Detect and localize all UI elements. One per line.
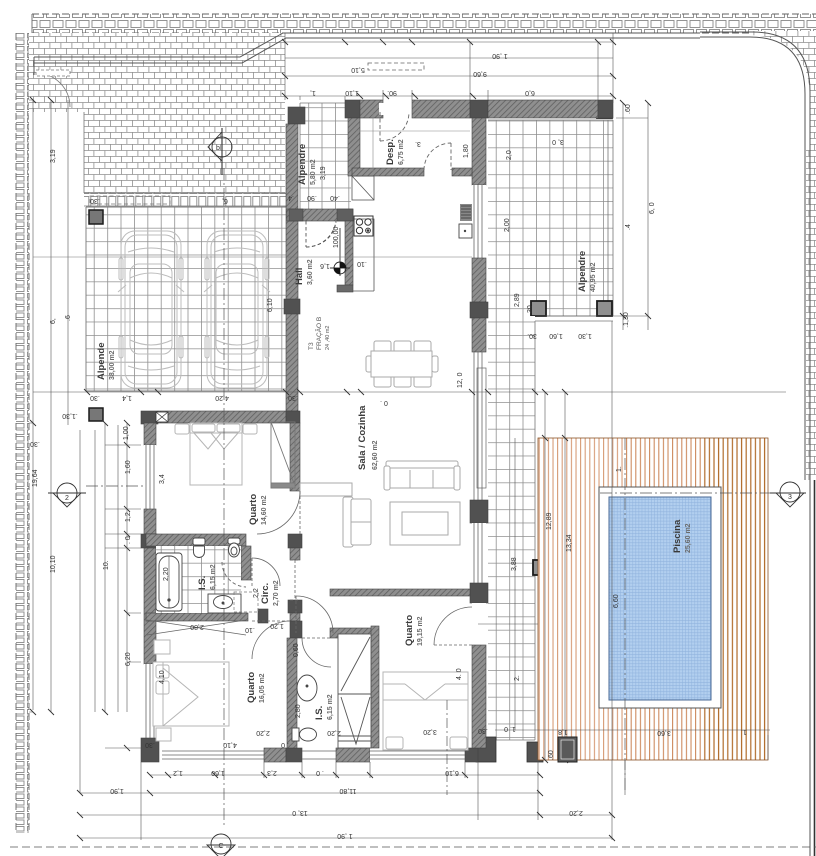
svg-text:5,80 m2: 5,80 m2 [310,159,317,185]
svg-text:30: 30 [527,305,534,313]
svg-text:24 ,40 m2: 24 ,40 m2 [325,326,331,350]
svg-text:62,60 m2: 62,60 m2 [372,440,379,470]
svg-text:3,19: 3,19 [320,166,327,180]
svg-text:2,20: 2,20 [163,567,170,581]
svg-text:2,89: 2,89 [514,293,521,307]
svg-text:.30: .30 [478,727,488,734]
svg-text:3.: 3. [415,140,421,147]
svg-text:Quarto: Quarto [248,494,259,525]
svg-text:9,60: 9,60 [473,70,487,77]
svg-text:.60: .60 [548,750,555,760]
svg-text:I.S.: I.S. [197,576,208,590]
svg-text:Alpendre: Alpendre [577,251,588,292]
svg-text:6,15 m2: 6,15 m2 [210,564,217,590]
svg-text:1,6: 1,6 [320,262,330,269]
svg-text:16,05 m2: 16,05 m2 [259,673,266,703]
svg-text:11,80: 11,80 [339,787,356,794]
svg-text:6,75 m2: 6,75 m2 [398,139,405,165]
svg-text:40,95 m2: 40,95 m2 [590,262,597,292]
svg-text:T3: T3 [308,342,315,350]
svg-text:2,2: 2,2 [253,588,260,598]
svg-text:100,00: 100,00 [333,226,340,248]
svg-text:.6: .6 [65,315,72,321]
svg-text:6,0: 6,0 [525,89,535,96]
svg-text:.30: .30 [30,440,40,447]
svg-text:6,15 m2: 6,15 m2 [327,694,334,720]
svg-text:.10: .10 [357,260,367,267]
svg-text:I.S.: I.S. [314,706,325,720]
svg-text:90.: 90. [387,89,397,96]
svg-text:1,2: 1,2 [125,512,132,522]
svg-text:C: C [218,843,223,850]
svg-text:4,20: 4,20 [215,394,229,401]
svg-text:Quarto: Quarto [404,615,415,646]
svg-text:1 ,90: 1 ,90 [337,832,353,839]
svg-text:b: b [216,145,220,152]
svg-text:30.: 30. [527,332,537,339]
svg-text:0 .: 0 . [380,399,388,406]
svg-text:6,: 6, [50,318,57,324]
svg-text:1,20: 1,20 [270,622,284,629]
svg-text:2,20: 2,20 [569,809,583,816]
svg-text:1,2: 1,2 [173,769,183,776]
svg-text:4. 0: 4. 0 [456,668,463,680]
svg-text:Piscina: Piscina [672,519,683,553]
svg-text:2,0: 2,0 [506,150,513,160]
svg-text:2,00: 2,00 [504,218,511,232]
svg-text:2,80: 2,80 [190,623,204,630]
svg-text:2,20: 2,20 [327,729,341,736]
svg-text:.30: .30 [145,741,155,748]
svg-text:1 ,90: 1 ,90 [492,52,508,59]
svg-text:. 0: . 0 [281,741,289,748]
svg-text:19,64: 19,64 [32,469,39,487]
svg-text:1,: 1, [310,89,316,96]
svg-text:1,60: 1,60 [211,769,225,776]
svg-text:.10: .10 [245,626,255,633]
svg-text:2,20: 2,20 [256,729,270,736]
svg-text:1,10: 1,10 [345,89,359,96]
svg-text:Sala / Cozinha: Sala / Cozinha [357,405,368,470]
svg-text:.30: .30 [90,197,100,204]
svg-text:Alpendre: Alpendre [297,144,308,185]
svg-text:13, 0: 13, 0 [292,809,308,816]
svg-text:3, 0: 3, 0 [552,138,564,145]
svg-text:Desp.: Desp. [385,139,396,165]
svg-text:10,10: 10,10 [50,555,57,573]
svg-text:3,60: 3,60 [657,729,671,736]
svg-text:13,34: 13,34 [566,534,573,552]
svg-text:12,89: 12,89 [546,512,553,530]
svg-text:6,60: 6,60 [613,594,620,608]
svg-text:4,10: 4,10 [159,670,166,684]
svg-text:1.: 1. [741,728,747,735]
svg-text:FRAÇÃO B: FRAÇÃO B [314,317,323,350]
svg-text:1.: 1. [616,466,623,472]
svg-text:1,8: 1,8 [558,728,568,735]
svg-text:38,00 m2: 38,00 m2 [109,350,116,380]
svg-text:2,3: 2,3 [267,769,277,776]
svg-text:6,: 6, [222,197,228,204]
svg-text:1,30: 1,30 [578,332,592,339]
svg-text:.40: .40 [330,194,340,201]
svg-text:6, 0: 6, 0 [649,202,656,214]
svg-text:3,20: 3,20 [423,728,437,735]
svg-text:.60: .60 [625,104,632,114]
svg-text:Circ.: Circ. [260,583,271,604]
svg-text:3,88: 3,88 [511,557,518,571]
svg-text:3,60 m2: 3,60 m2 [307,259,314,285]
svg-text:Hall: Hall [294,268,305,285]
svg-text:Quarto: Quarto [246,672,257,703]
svg-text:1,90: 1,90 [110,787,124,794]
svg-text:Alpende: Alpende [96,343,107,380]
svg-text:.1,30: .1,30 [62,412,78,419]
svg-text:4,10: 4,10 [223,741,237,748]
svg-text:.1,30: .1,30 [623,312,630,328]
svg-text:1,4: 1,4 [122,394,132,401]
svg-text:.30: .30 [288,394,298,401]
svg-text:.30: .30 [90,394,100,401]
svg-text:5,10: 5,10 [351,66,365,73]
svg-text:14,60 m2: 14,60 m2 [261,495,268,525]
svg-text:. 0: . 0 [316,769,324,776]
svg-text:10.: 10. [103,560,110,570]
svg-text:0,60: 0,60 [293,643,300,657]
svg-text:1. 0: 1. 0 [504,725,516,732]
svg-text:3: 3 [788,494,792,501]
svg-text:2.: 2. [514,675,521,681]
svg-text:1,80: 1,80 [463,144,470,158]
svg-text:1,00: 1,00 [123,426,130,440]
svg-text:2: 2 [65,495,69,502]
svg-text:25,60 m2: 25,60 m2 [685,523,692,553]
svg-text:2,80: 2,80 [295,704,302,718]
svg-text:. 0: . 0 [125,536,132,544]
svg-text:2,70 m2: 2,70 m2 [273,580,280,606]
svg-text:3,19: 3,19 [50,149,57,163]
svg-text:19,15 m2: 19,15 m2 [417,616,424,646]
svg-text:6,10: 6,10 [267,298,274,312]
svg-text:1,60: 1,60 [125,460,132,474]
svg-text:6,20: 6,20 [125,652,132,666]
svg-text:1,60: 1,60 [549,332,563,339]
svg-text:.90: .90 [307,194,317,201]
svg-text:3,4: 3,4 [159,474,166,484]
svg-text:.4: .4 [625,224,632,230]
svg-text:12, 0: 12, 0 [457,372,464,388]
svg-text:.4: .4 [288,194,294,201]
